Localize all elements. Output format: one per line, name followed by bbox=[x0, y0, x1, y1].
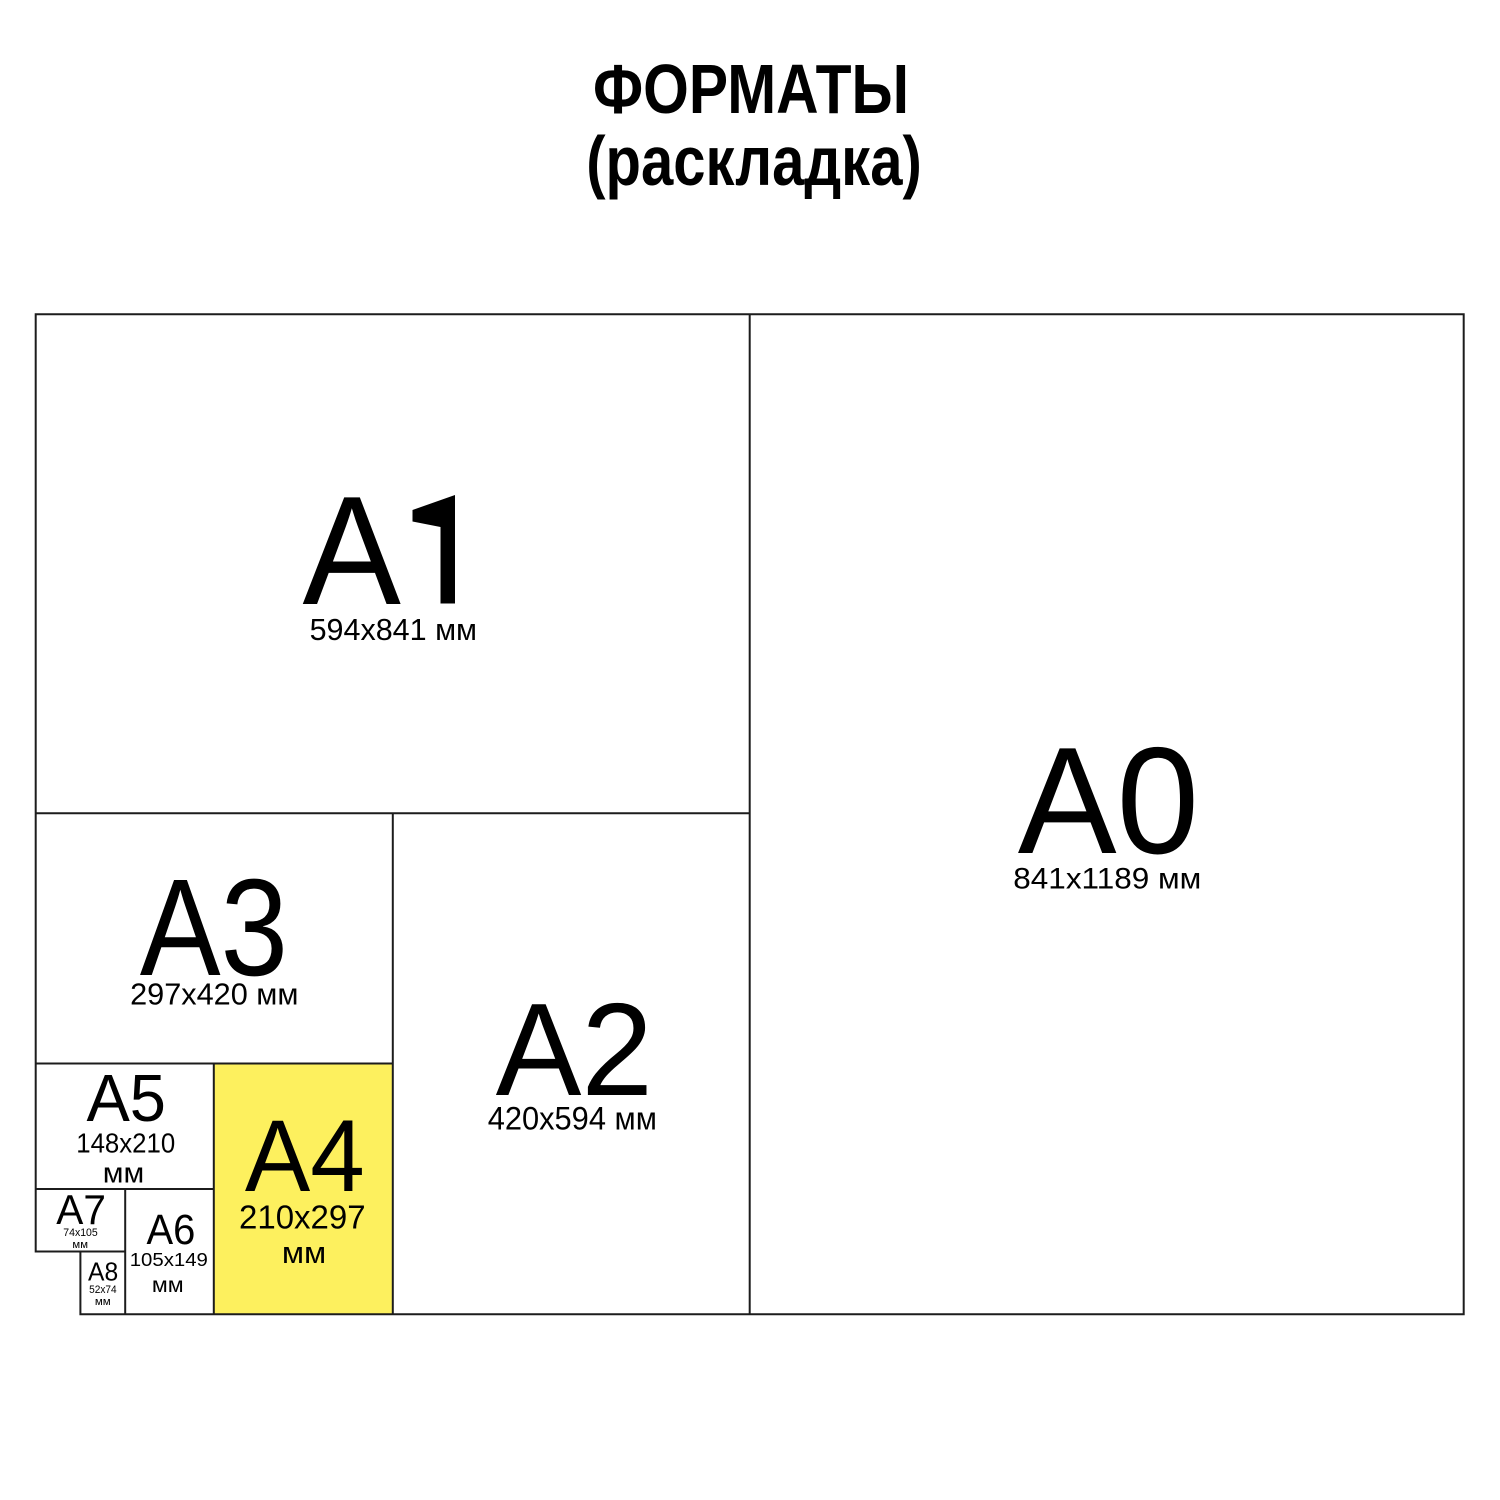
svg-text:297х420 мм: 297х420 мм bbox=[130, 976, 298, 1011]
svg-text:мм: мм bbox=[72, 1239, 88, 1251]
svg-text:(раскладка): (раскладка) bbox=[586, 122, 922, 200]
svg-text:А5: А5 bbox=[86, 1060, 165, 1135]
svg-text:105х149: 105х149 bbox=[130, 1250, 208, 1271]
svg-text:мм: мм bbox=[95, 1296, 111, 1308]
svg-text:А: А bbox=[302, 465, 400, 638]
svg-text:А8: А8 bbox=[88, 1258, 118, 1287]
svg-text:148х210: 148х210 bbox=[76, 1128, 175, 1159]
svg-text:74х105: 74х105 bbox=[63, 1227, 98, 1239]
svg-text:52х74: 52х74 bbox=[89, 1284, 117, 1297]
svg-text:420х594 мм: 420х594 мм bbox=[488, 1101, 657, 1137]
svg-text:мм: мм bbox=[152, 1273, 184, 1297]
svg-text:210х297: 210х297 bbox=[239, 1199, 366, 1236]
svg-text:594х841 мм: 594х841 мм bbox=[310, 613, 477, 647]
svg-text:А4: А4 bbox=[245, 1099, 365, 1213]
svg-text:мм: мм bbox=[103, 1158, 144, 1189]
svg-text:А0: А0 bbox=[1018, 715, 1199, 885]
svg-text:841х1189 мм: 841х1189 мм bbox=[1013, 861, 1201, 895]
svg-text:мм: мм bbox=[282, 1235, 326, 1270]
svg-text:А6: А6 bbox=[146, 1205, 195, 1254]
svg-text:ФОРМАТЫ: ФОРМАТЫ bbox=[593, 50, 909, 128]
